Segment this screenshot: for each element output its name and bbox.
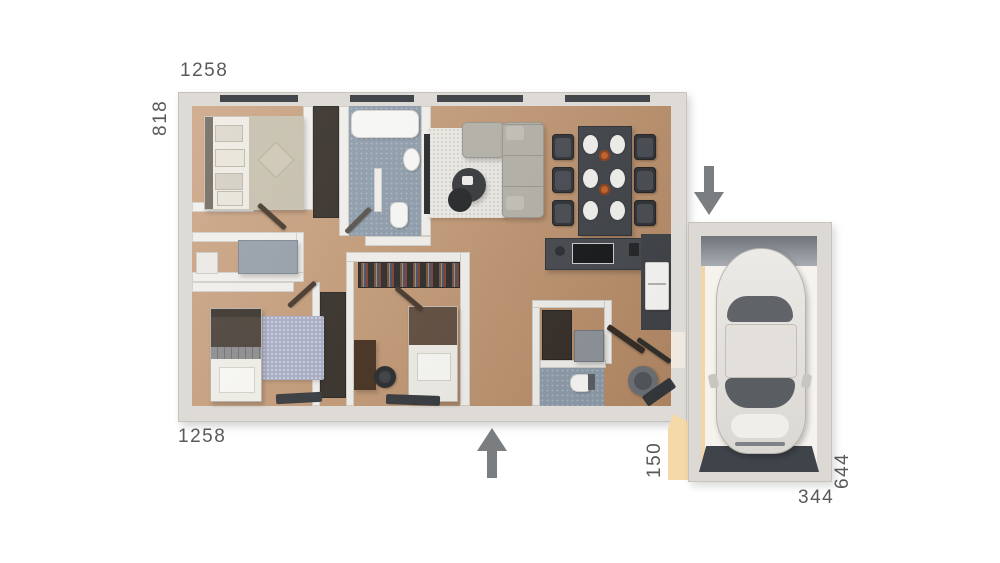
- table-tray: [462, 176, 473, 185]
- bed-pillow: [417, 353, 451, 381]
- wall: [532, 300, 540, 406]
- bed-blanket: [211, 317, 261, 347]
- wardrobe-master: [313, 106, 339, 218]
- master-bed-pillow: [217, 191, 243, 206]
- dining-chair: [634, 200, 656, 226]
- hall-closet: [542, 310, 572, 360]
- kitchen-sink: [555, 246, 565, 256]
- bathtub: [351, 110, 419, 138]
- entry-doorway-gap: [671, 332, 685, 368]
- garage-floor-accent: [701, 236, 705, 466]
- storage-cabinet: [238, 240, 298, 274]
- dining-chair: [552, 134, 574, 160]
- storage-box: [196, 252, 218, 274]
- window: [565, 95, 650, 102]
- wall: [346, 252, 468, 262]
- appliance: [574, 330, 604, 362]
- place-setting: [610, 201, 625, 220]
- wc-cistern: [588, 374, 595, 390]
- bedroom2-rug: [262, 316, 324, 380]
- dimension-left-height: 818: [150, 86, 172, 136]
- wall: [374, 168, 382, 212]
- coffee-table-small: [448, 188, 472, 212]
- place-setting: [610, 135, 625, 154]
- arrow-up-icon: [477, 428, 507, 478]
- refrigerator: [645, 262, 669, 310]
- car-hood: [731, 414, 789, 438]
- window: [437, 95, 523, 102]
- bed-headboard: [211, 309, 261, 317]
- wall: [365, 236, 431, 246]
- car-grille: [735, 442, 785, 446]
- dining-chair: [634, 134, 656, 160]
- master-bed-pillow: [215, 125, 243, 142]
- dimension-garage-width: 344: [798, 487, 834, 509]
- sofa-cushion: [506, 126, 524, 140]
- master-bed: [204, 116, 304, 210]
- window: [220, 95, 298, 102]
- car-roof: [725, 324, 797, 378]
- bedroom2-bed: [210, 308, 262, 402]
- window: [350, 95, 414, 102]
- car: [716, 248, 804, 452]
- laundry-basket-inner: [634, 372, 652, 390]
- dimension-bottom-width: 1258: [178, 426, 226, 448]
- bed-plaid-band: [211, 347, 261, 359]
- place-setting: [583, 135, 598, 154]
- car-windshield: [725, 378, 795, 408]
- master-bed-headboard: [205, 117, 213, 209]
- dimension-breezeway-width: 150: [644, 432, 666, 478]
- serving-dish: [599, 184, 610, 195]
- office-chair: [374, 366, 396, 388]
- wall: [460, 252, 470, 406]
- arrow-down-icon: [694, 166, 724, 216]
- sofa-cushion: [506, 196, 524, 210]
- dining-chair: [552, 167, 574, 193]
- bed-blanket: [409, 307, 457, 345]
- toilet: [390, 202, 408, 228]
- tv-panel: [424, 134, 430, 214]
- closet-bedroom3: [358, 262, 460, 288]
- wc-toilet: [570, 374, 590, 392]
- bedroom3-bed: [408, 306, 458, 402]
- dimension-top-width: 1258: [180, 60, 228, 82]
- place-setting: [583, 201, 598, 220]
- bathroom-sink: [403, 148, 420, 171]
- office-chair-seat: [379, 371, 391, 383]
- master-bed-pillow: [215, 173, 243, 190]
- refrigerator-handle: [648, 283, 666, 285]
- master-bed-pillow: [215, 149, 245, 167]
- serving-dish: [599, 150, 610, 161]
- sofa-chaise: [462, 122, 504, 158]
- wall: [532, 300, 612, 308]
- place-setting: [610, 169, 625, 188]
- wall: [346, 252, 354, 406]
- wall: [339, 106, 349, 236]
- car-rear-window: [727, 296, 793, 322]
- bedroom3-desk: [354, 340, 376, 390]
- bedroom3-mat: [386, 394, 440, 406]
- cooktop: [572, 243, 614, 264]
- wall: [192, 282, 294, 292]
- dining-chair: [634, 167, 656, 193]
- place-setting: [583, 169, 598, 188]
- wall: [303, 106, 313, 210]
- bed-pillow: [219, 367, 255, 393]
- floor-plan-canvas: 1258 818 1258 150 344 644: [0, 0, 1000, 563]
- kitchen-item: [629, 243, 639, 256]
- dimension-garage-depth: 644: [832, 443, 854, 489]
- dining-chair: [552, 200, 574, 226]
